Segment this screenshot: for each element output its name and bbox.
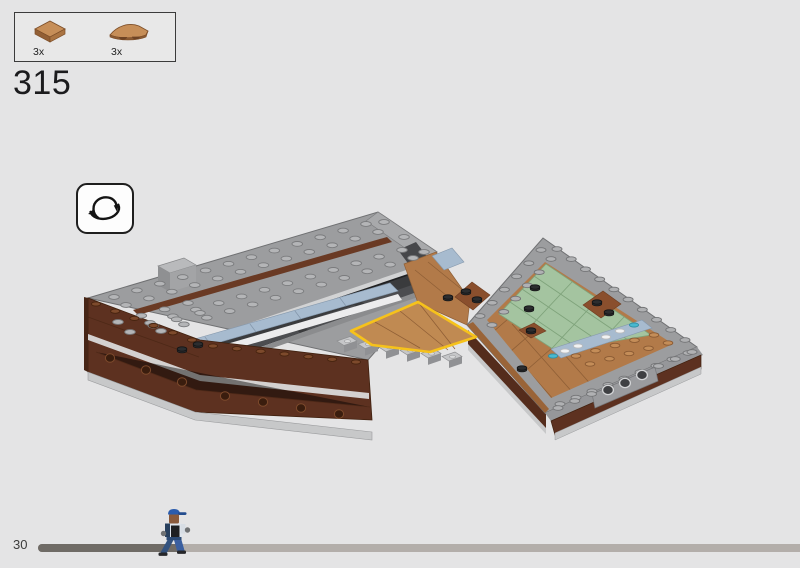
page-number: 30 (13, 537, 27, 552)
walking-minifigure-icon (154, 506, 200, 560)
instruction-page: { "page": { "background_color": "#e4e4e5… (0, 0, 800, 568)
progress-track (38, 544, 800, 552)
page-canvas: 3x 3x 315 (0, 0, 800, 568)
right-wing (455, 238, 703, 440)
model-illustration (0, 0, 800, 568)
